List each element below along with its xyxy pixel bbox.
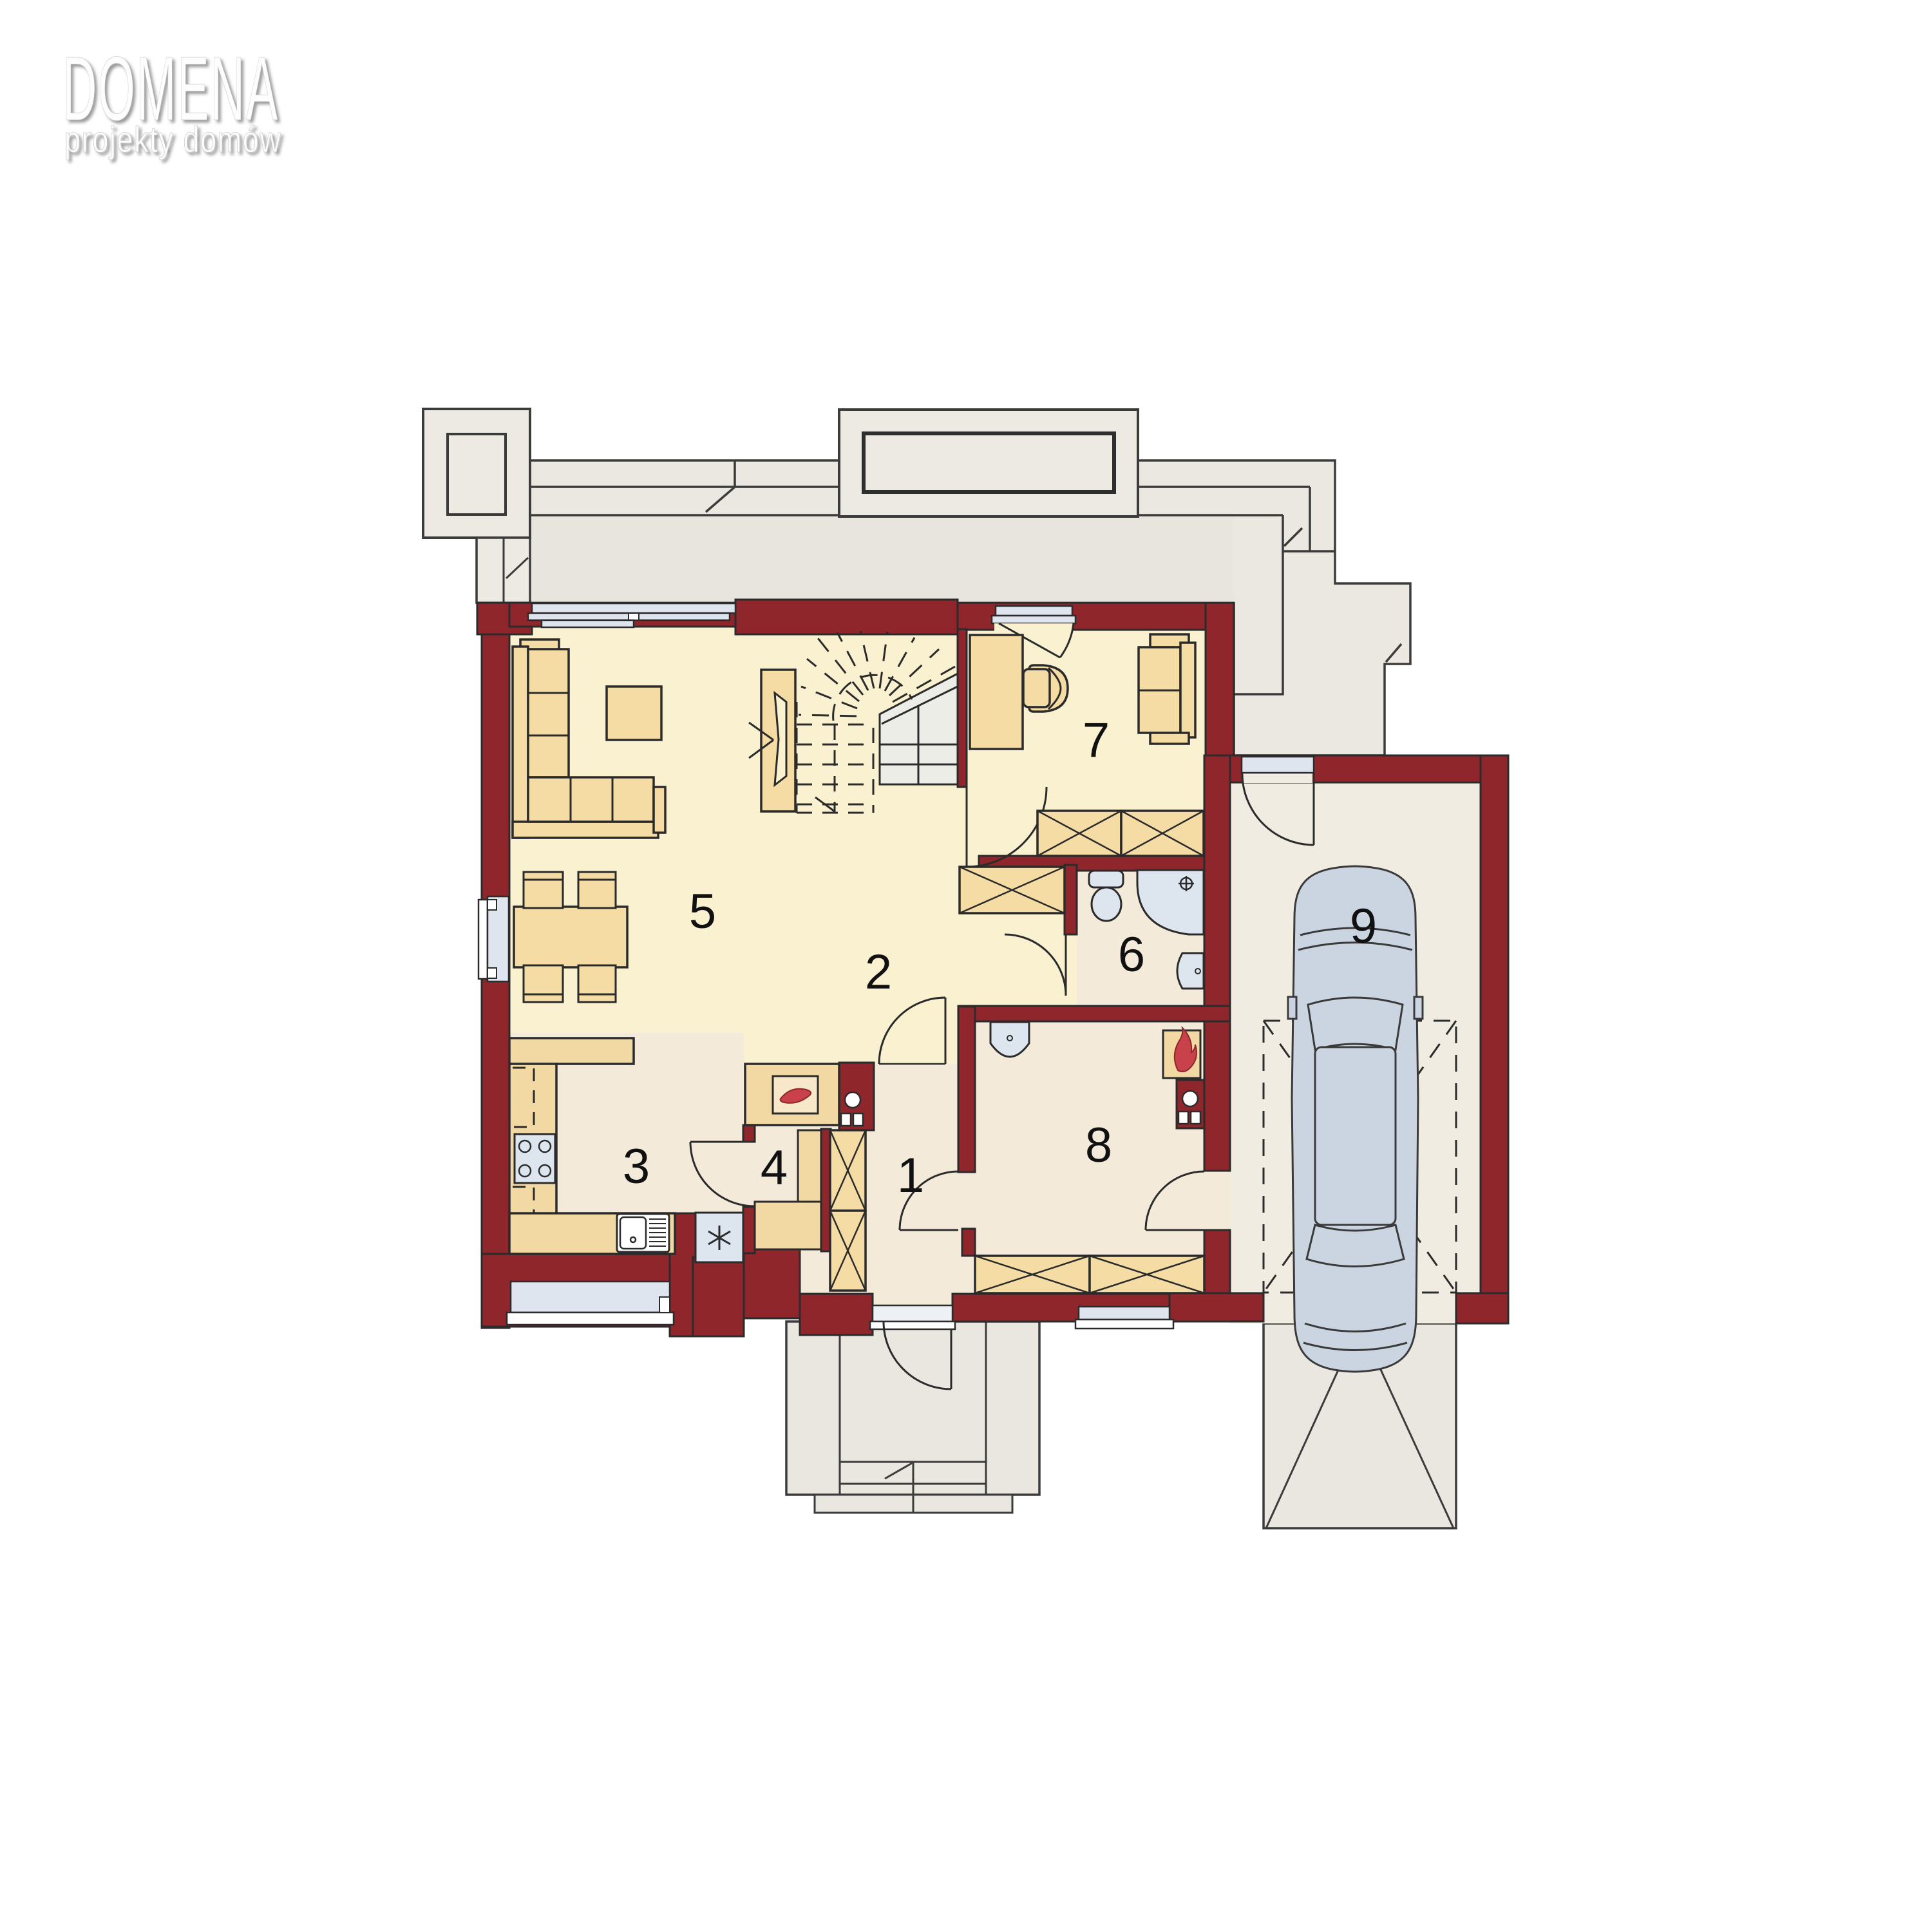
svg-text:1: 1 — [897, 1148, 924, 1203]
svg-text:5: 5 — [689, 884, 716, 939]
svg-text:9: 9 — [1350, 899, 1377, 954]
svg-text:7: 7 — [1083, 713, 1110, 768]
svg-text:projekty domów: projekty domów — [64, 119, 281, 160]
svg-text:4: 4 — [761, 1141, 788, 1195]
svg-text:2: 2 — [865, 945, 892, 999]
svg-text:8: 8 — [1085, 1118, 1112, 1173]
svg-text:6: 6 — [1118, 927, 1145, 982]
svg-text:3: 3 — [623, 1139, 650, 1194]
